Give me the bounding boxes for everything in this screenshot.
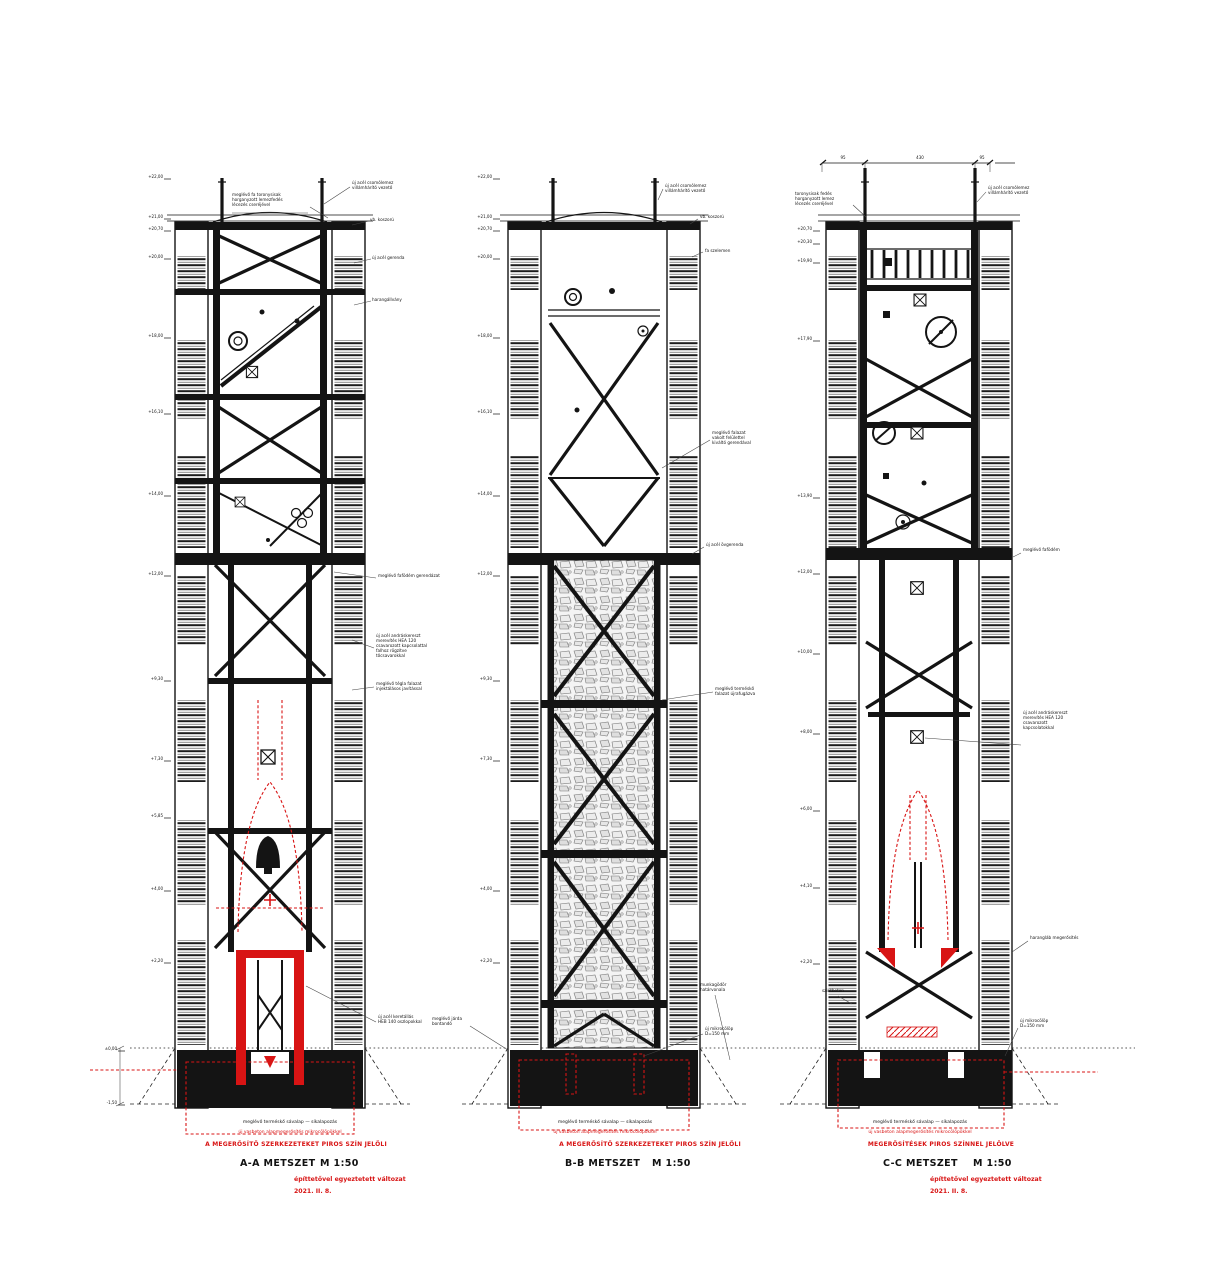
ann-label: meglévő járdabontandó (432, 1016, 462, 1026)
elev-label: +20,70 (477, 226, 492, 231)
elev-label: +8,00 (800, 729, 813, 734)
ann-label: új acél csomólemezvillámhárító vezető (665, 183, 707, 193)
elev-label: +6,00 (800, 806, 813, 811)
dim-label: 95 (979, 155, 985, 160)
red-subnote-2: 2021. II. 8. (294, 1188, 332, 1195)
elev-label: +13,90 (797, 493, 812, 498)
section-b-titleblock: meglévő terméskő sávalap — síkalapozás ú… (553, 1118, 741, 1169)
foundation-note-red: új vasbeton alapmegerősítés mikrocölöpök… (553, 1128, 656, 1135)
section-c-roof (818, 168, 1020, 230)
ann-label: új acél csomólemezvillámhárító vezető (352, 180, 394, 190)
elev-label: +2,20 (800, 959, 813, 964)
ann-label: új acél andráskeresztmerevítés HEA 120cs… (1023, 710, 1068, 730)
section-c-titleblock: meglévő terméskő sávalap — síkalapozás ú… (868, 1118, 1042, 1195)
section-c-dimension-line (820, 160, 1015, 172)
elev-label: +10,00 (797, 649, 812, 654)
elev-label: +20,30 (797, 239, 812, 244)
drawing-sheet: új acél csomólemezvillámhárító vezetőmeg… (0, 0, 1230, 1280)
ann-label: új mikrocölöpD=150 mm (705, 1026, 734, 1036)
section-c-shaft (866, 560, 972, 1037)
ann-label: szintbeton (822, 988, 844, 993)
elev-label: +7,30 (480, 756, 493, 761)
section-a: új acél csomólemezvillámhárító vezetőmeg… (90, 174, 440, 1195)
elev-label: +19,90 (797, 258, 812, 263)
section-title: A-A METSZET (240, 1158, 316, 1169)
elev-label: +21,00 (148, 214, 163, 219)
section-c-elevation-marks: +20,70+20,30+19,90+17,90+13,90+12,00+10,… (797, 226, 820, 964)
elev-label: +16,10 (477, 409, 492, 414)
elev-label: +9,30 (480, 676, 493, 681)
elev-label: +18,00 (148, 333, 163, 338)
elev-label: +14,00 (477, 491, 492, 496)
elev-label: +18,00 (477, 333, 492, 338)
elev-label: +20,00 (148, 254, 163, 259)
elev-label: +17,90 (797, 336, 812, 341)
elev-label: +16,10 (148, 409, 163, 414)
elev-label: +2,20 (480, 958, 493, 963)
section-c-dim-labels: 9543095 (840, 155, 985, 160)
red-subnote-2: 2021. II. 8. (930, 1188, 968, 1195)
section-a-walls (175, 222, 365, 1108)
foundation-note-black: meglévő terméskő sávalap — síkalapozás (873, 1118, 968, 1125)
elev-label: +4,10 (800, 883, 813, 888)
red-subnote-1: építtetővel egyeztetett változat (930, 1174, 1042, 1183)
red-subnote-1: építtetővel egyeztetett változat (294, 1174, 406, 1183)
ann-label: új acél keretállásHEB 140 oszlopokkal (378, 1014, 422, 1024)
section-a-titleblock: meglévő terméskő sávalap — síkalapozás ú… (205, 1118, 406, 1195)
section-c-walls (826, 222, 1012, 1108)
foundation-note-black: meglévő terméskő sávalap — síkalapozás (558, 1118, 653, 1125)
ann-label: toronysisak fedéshorganyzott lemezlécezé… (795, 191, 835, 206)
section-a-elevation-marks: +22,00+21,00+20,70+20,00+18,00+16,10+14,… (105, 174, 171, 1105)
foundation-note-black: meglévő terméskő sávalap — síkalapozás (243, 1118, 338, 1125)
elev-label: +22,00 (477, 174, 492, 179)
elev-label: +2,20 (151, 958, 164, 963)
ann-label: harangállvány (372, 297, 402, 302)
ann-label: harangláb megerősítés (1030, 935, 1078, 940)
elev-label: +9,30 (151, 676, 164, 681)
ann-label: munkagödörhatárvonala (700, 982, 727, 992)
ann-label: új acél gerenda (372, 255, 405, 260)
section-b: új acél csomólemezvillámhárító vezetővb.… (432, 174, 756, 1169)
section-title: B-B METSZET (565, 1158, 640, 1169)
ann-label: új acél övgerenda (706, 542, 744, 547)
elev-label: +4,00 (151, 886, 164, 891)
ann-label: meglévő fafödém gerendázat (378, 573, 440, 578)
red-banner: MEGERŐSÍTÉSEK PIROS SZÍNNEL JELÖLVE (868, 1140, 1014, 1148)
ann-label: vb. koszorú (700, 214, 724, 219)
elev-label: +22,00 (148, 174, 163, 179)
foundation-note-red: új vasbeton alapmegerősítés mikrocölöpök… (868, 1128, 971, 1135)
section-c: 9543095 (780, 155, 1098, 1195)
elev-label: +21,00 (477, 214, 492, 219)
sections-drawing: új acél csomólemezvillámhárító vezetőmeg… (0, 0, 1230, 1280)
elev-label: +12,00 (477, 571, 492, 576)
section-scale: M 1:50 (973, 1158, 1012, 1169)
section-a-belfry-structure (217, 235, 323, 546)
elev-label: +4,00 (480, 886, 493, 891)
ann-label: meglévő fa toronysisakhorganyzott lemezf… (232, 192, 283, 207)
red-banner: A MEGERŐSÍTŐ SZERKEZETEKET PIROS SZÍN JE… (205, 1140, 387, 1148)
ann-label: új acél andráskeresztmerevítés HEA 120cs… (376, 633, 427, 658)
red-banner: A MEGERŐSÍTŐ SZERKEZETEKET PIROS SZÍN JE… (559, 1140, 741, 1148)
elev-label: +20,00 (477, 254, 492, 259)
dim-label: 95 (840, 155, 846, 160)
foundation-note-red: új vasbeton alapmegerősítés mikrocölöpök… (238, 1128, 341, 1135)
ann-label: vb. koszorú (370, 217, 394, 222)
section-b-elevation-marks: +22,00+21,00+20,70+20,00+18,00+16,10+14,… (477, 174, 500, 963)
elev-label: +20,70 (797, 226, 812, 231)
ann-label: új acél csomólemezvillámhárító vezető (988, 185, 1030, 195)
elev-label: +7,30 (151, 756, 164, 761)
elev-label: +14,00 (148, 491, 163, 496)
elev-label: ±0,00 (105, 1046, 118, 1051)
section-a-shaft (215, 560, 325, 952)
section-title: C-C METSZET (883, 1158, 958, 1169)
ann-label: meglévő falazatvakolt felülettelkiváltó … (712, 430, 751, 445)
dim-label: 430 (916, 155, 924, 160)
elev-label: +5,85 (151, 813, 164, 818)
section-scale: M 1:50 (652, 1158, 691, 1169)
section-b-stone-shaft (541, 560, 667, 1048)
ann-label: új mikrocölöpD=150 mm (1020, 1018, 1049, 1028)
ann-label: meglévő terméskőfalazat újrafugázva (715, 686, 756, 696)
section-b-foundation (462, 1048, 746, 1130)
ann-label: meglévő tégla falazatinjektálásos javítá… (376, 681, 422, 691)
elev-label: +12,00 (797, 569, 812, 574)
elev-label: +12,00 (148, 571, 163, 576)
ann-label: meglévő fafödém (1023, 547, 1060, 552)
ann-label: fa szelemen (705, 248, 731, 253)
elev-label: +20,70 (148, 226, 163, 231)
elev-label: -1,50 (107, 1100, 118, 1105)
section-scale: M 1:50 (320, 1158, 359, 1169)
